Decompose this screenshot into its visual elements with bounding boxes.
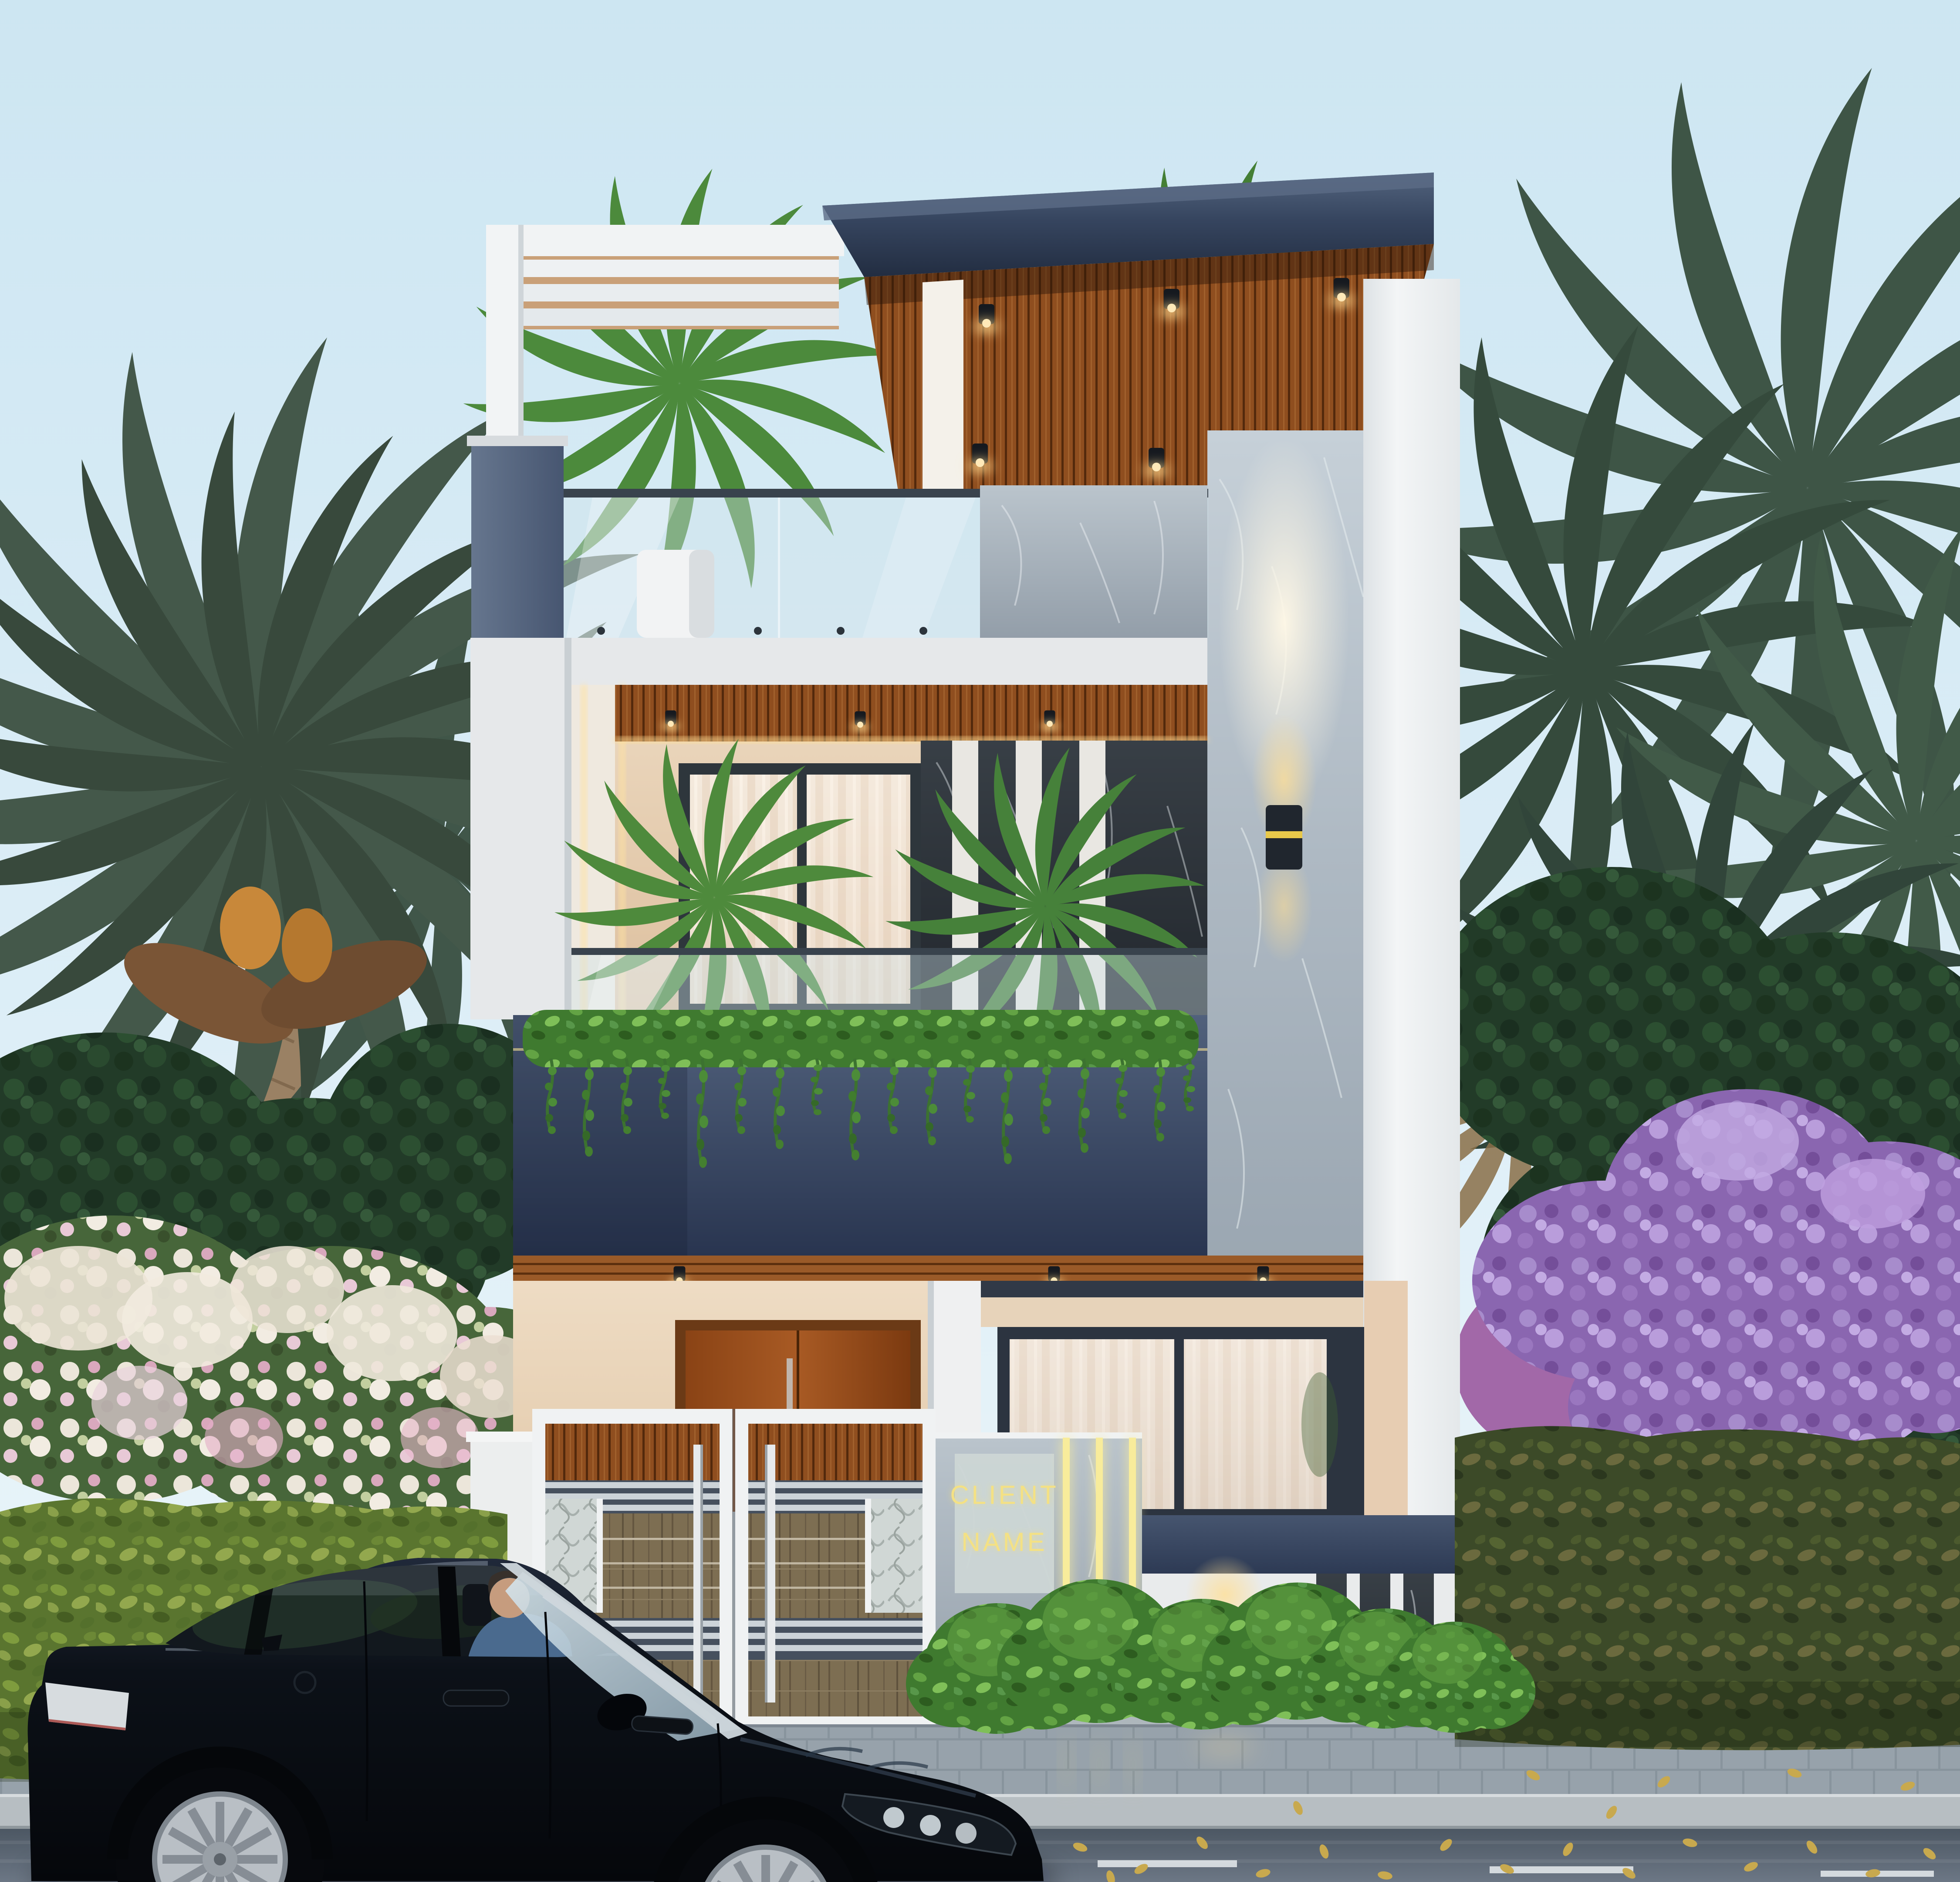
client-name-sign	[955, 1454, 1054, 1593]
side-wall-strip	[1364, 1281, 1408, 1520]
marble-column	[1207, 430, 1363, 1281]
house: CLIENT CLIENT NAME NAME	[463, 156, 1460, 1736]
terrace-plant-pot	[637, 550, 714, 638]
client-sign-line2-sharp: NAME	[961, 1527, 1047, 1557]
architectural-render: CLIENT CLIENT NAME NAME	[0, 0, 1960, 1882]
planter-band	[513, 1010, 1207, 1256]
client-sign-line1-sharp: CLIENT	[950, 1480, 1058, 1510]
porch-wood-soffit	[513, 1256, 1363, 1281]
soffit-white-strip	[923, 280, 963, 491]
gate-right-leaf	[735, 1409, 936, 1731]
car-door-handle	[443, 1690, 509, 1706]
gate-handle	[767, 1445, 775, 1703]
scene: CLIENT CLIENT NAME NAME	[0, 0, 1960, 1882]
gate-glass-decor	[871, 1499, 923, 1613]
navy-band	[1142, 1515, 1459, 1574]
balcony-wood-ceiling	[615, 685, 1207, 741]
